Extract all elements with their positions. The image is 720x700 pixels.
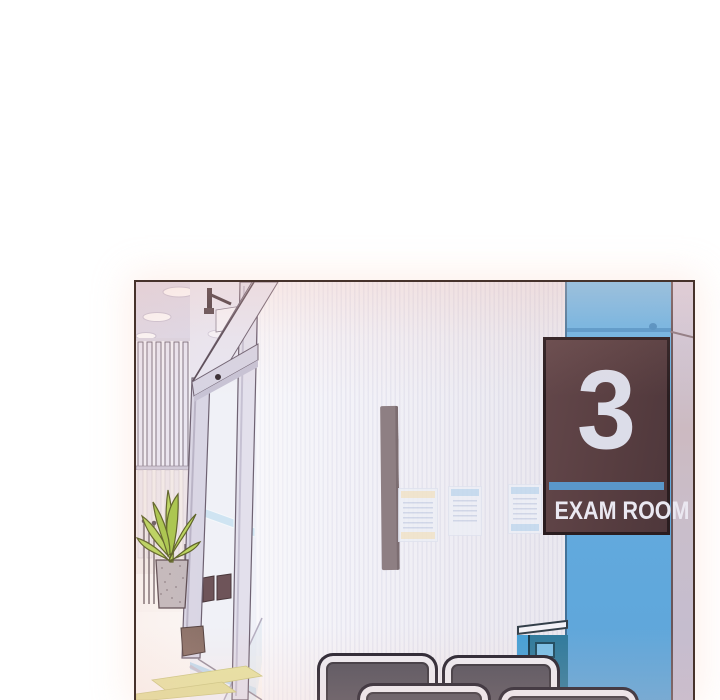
kick-plate bbox=[217, 574, 231, 600]
kick-plate bbox=[203, 576, 214, 602]
wall-poster bbox=[448, 486, 482, 536]
exam-room-sign: 3 EXAM ROOM bbox=[543, 337, 670, 535]
waiting-chair bbox=[357, 683, 491, 700]
side-wall-strip bbox=[671, 282, 693, 700]
waiting-chair bbox=[498, 687, 639, 700]
entrance-illustration bbox=[136, 282, 426, 700]
plant-pot bbox=[156, 560, 188, 608]
comic-panel: 3 EXAM ROOM bbox=[134, 280, 695, 700]
ceiling-light bbox=[143, 313, 171, 322]
poster-header bbox=[451, 489, 479, 496]
slat-window bbox=[136, 338, 190, 470]
poster-text-lines bbox=[513, 498, 537, 522]
poster-footer bbox=[511, 524, 539, 531]
room-label: EXAM ROOM bbox=[554, 497, 658, 526]
clinic-hallway-scene: 3 EXAM ROOM bbox=[136, 282, 693, 700]
side-wall-seam bbox=[670, 331, 693, 340]
wall-poster bbox=[508, 484, 542, 534]
motion-sensor bbox=[215, 374, 221, 380]
poster-text-lines bbox=[453, 500, 477, 524]
pillar-fastener bbox=[649, 323, 657, 330]
sign-face: 3 EXAM ROOM bbox=[543, 337, 670, 535]
webtoon-page: 3 EXAM ROOM bbox=[0, 0, 720, 700]
room-number: 3 bbox=[549, 352, 664, 468]
door-post-foot bbox=[181, 626, 205, 656]
sign-stripe bbox=[549, 482, 664, 490]
poster-header bbox=[511, 487, 539, 494]
